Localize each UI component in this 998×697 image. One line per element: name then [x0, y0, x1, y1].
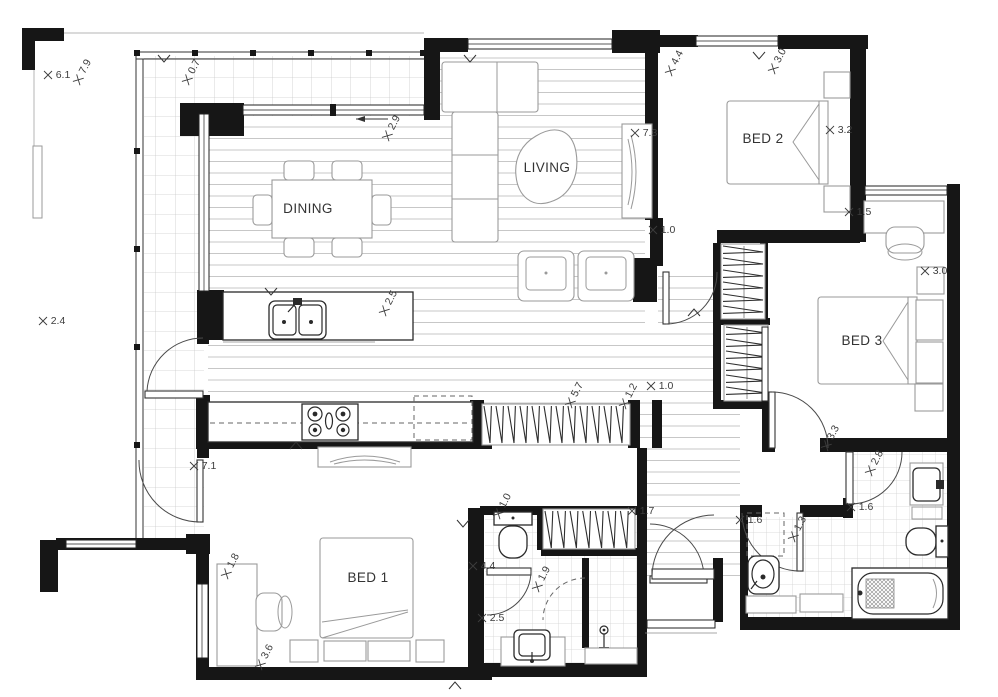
svg-text:1.5: 1.5: [857, 206, 872, 218]
hall-floor-upper: [640, 323, 713, 403]
dining-sliding-door: [243, 104, 424, 116]
bed2-window: [696, 36, 778, 46]
dimension-label: 3.0: [766, 46, 789, 75]
svg-text:4.4: 4.4: [669, 48, 687, 67]
svg-text:1.7: 1.7: [640, 505, 655, 517]
kitchen-sink: [269, 298, 326, 339]
svg-text:1.0: 1.0: [661, 224, 676, 236]
bed3-desk: [864, 201, 944, 260]
svg-text:2.4: 2.4: [51, 315, 66, 327]
armchair: [518, 251, 574, 301]
floor-plan-drawing: DININGLIVINGBED 2BED 3BED 1 6.17.90.72.9…: [0, 0, 998, 697]
hall-cabinet: [800, 594, 843, 612]
svg-text:7.9: 7.9: [77, 57, 95, 76]
bed1-window: [197, 584, 208, 658]
room-label: BED 2: [742, 131, 783, 146]
bed1-tv-cabinet: [318, 447, 411, 467]
room-label: DINING: [283, 201, 333, 216]
svg-text:1.0: 1.0: [659, 380, 674, 392]
dimension-label: 3.2: [826, 124, 852, 136]
bed3-door[interactable]: [769, 392, 828, 448]
bathtub: [852, 568, 948, 619]
dimension-label: 6.1: [44, 69, 70, 81]
svg-text:1.6: 1.6: [748, 514, 763, 526]
svg-text:3.2: 3.2: [838, 124, 853, 136]
floor-plan-page: DININGLIVINGBED 2BED 3BED 1 6.17.90.72.9…: [0, 0, 998, 697]
dimension-label: 2.4: [39, 315, 65, 327]
room-label: LIVING: [524, 160, 571, 175]
svg-text:3.0: 3.0: [933, 265, 948, 277]
room-label: BED 3: [841, 333, 882, 348]
laundry-tub: [748, 556, 779, 594]
cooktop: [302, 404, 358, 440]
shower-bench: [585, 648, 637, 664]
living-window: [468, 39, 612, 49]
svg-text:6.1: 6.1: [56, 69, 71, 81]
laundry-cabinet: [746, 596, 796, 613]
svg-text:2.5: 2.5: [490, 612, 505, 624]
room-label: BED 1: [347, 570, 388, 585]
bed-1: [290, 538, 444, 662]
svg-text:7.1: 7.1: [202, 460, 217, 472]
kitchen-bench: [208, 396, 473, 442]
bed3-window: [865, 186, 947, 195]
svg-text:4.4: 4.4: [481, 560, 496, 572]
armchair: [578, 251, 634, 301]
corridor-floor: [647, 450, 740, 580]
dimension-label: 7.9: [71, 57, 94, 86]
svg-text:3.6: 3.6: [259, 642, 277, 661]
svg-text:7.3: 7.3: [643, 127, 658, 139]
svg-text:1.6: 1.6: [859, 501, 874, 513]
dimension-label: 4.4: [663, 48, 686, 77]
balcony-glass-wall: [199, 114, 209, 291]
bath-toilet: [906, 526, 948, 557]
bed1-desk: [217, 564, 292, 666]
